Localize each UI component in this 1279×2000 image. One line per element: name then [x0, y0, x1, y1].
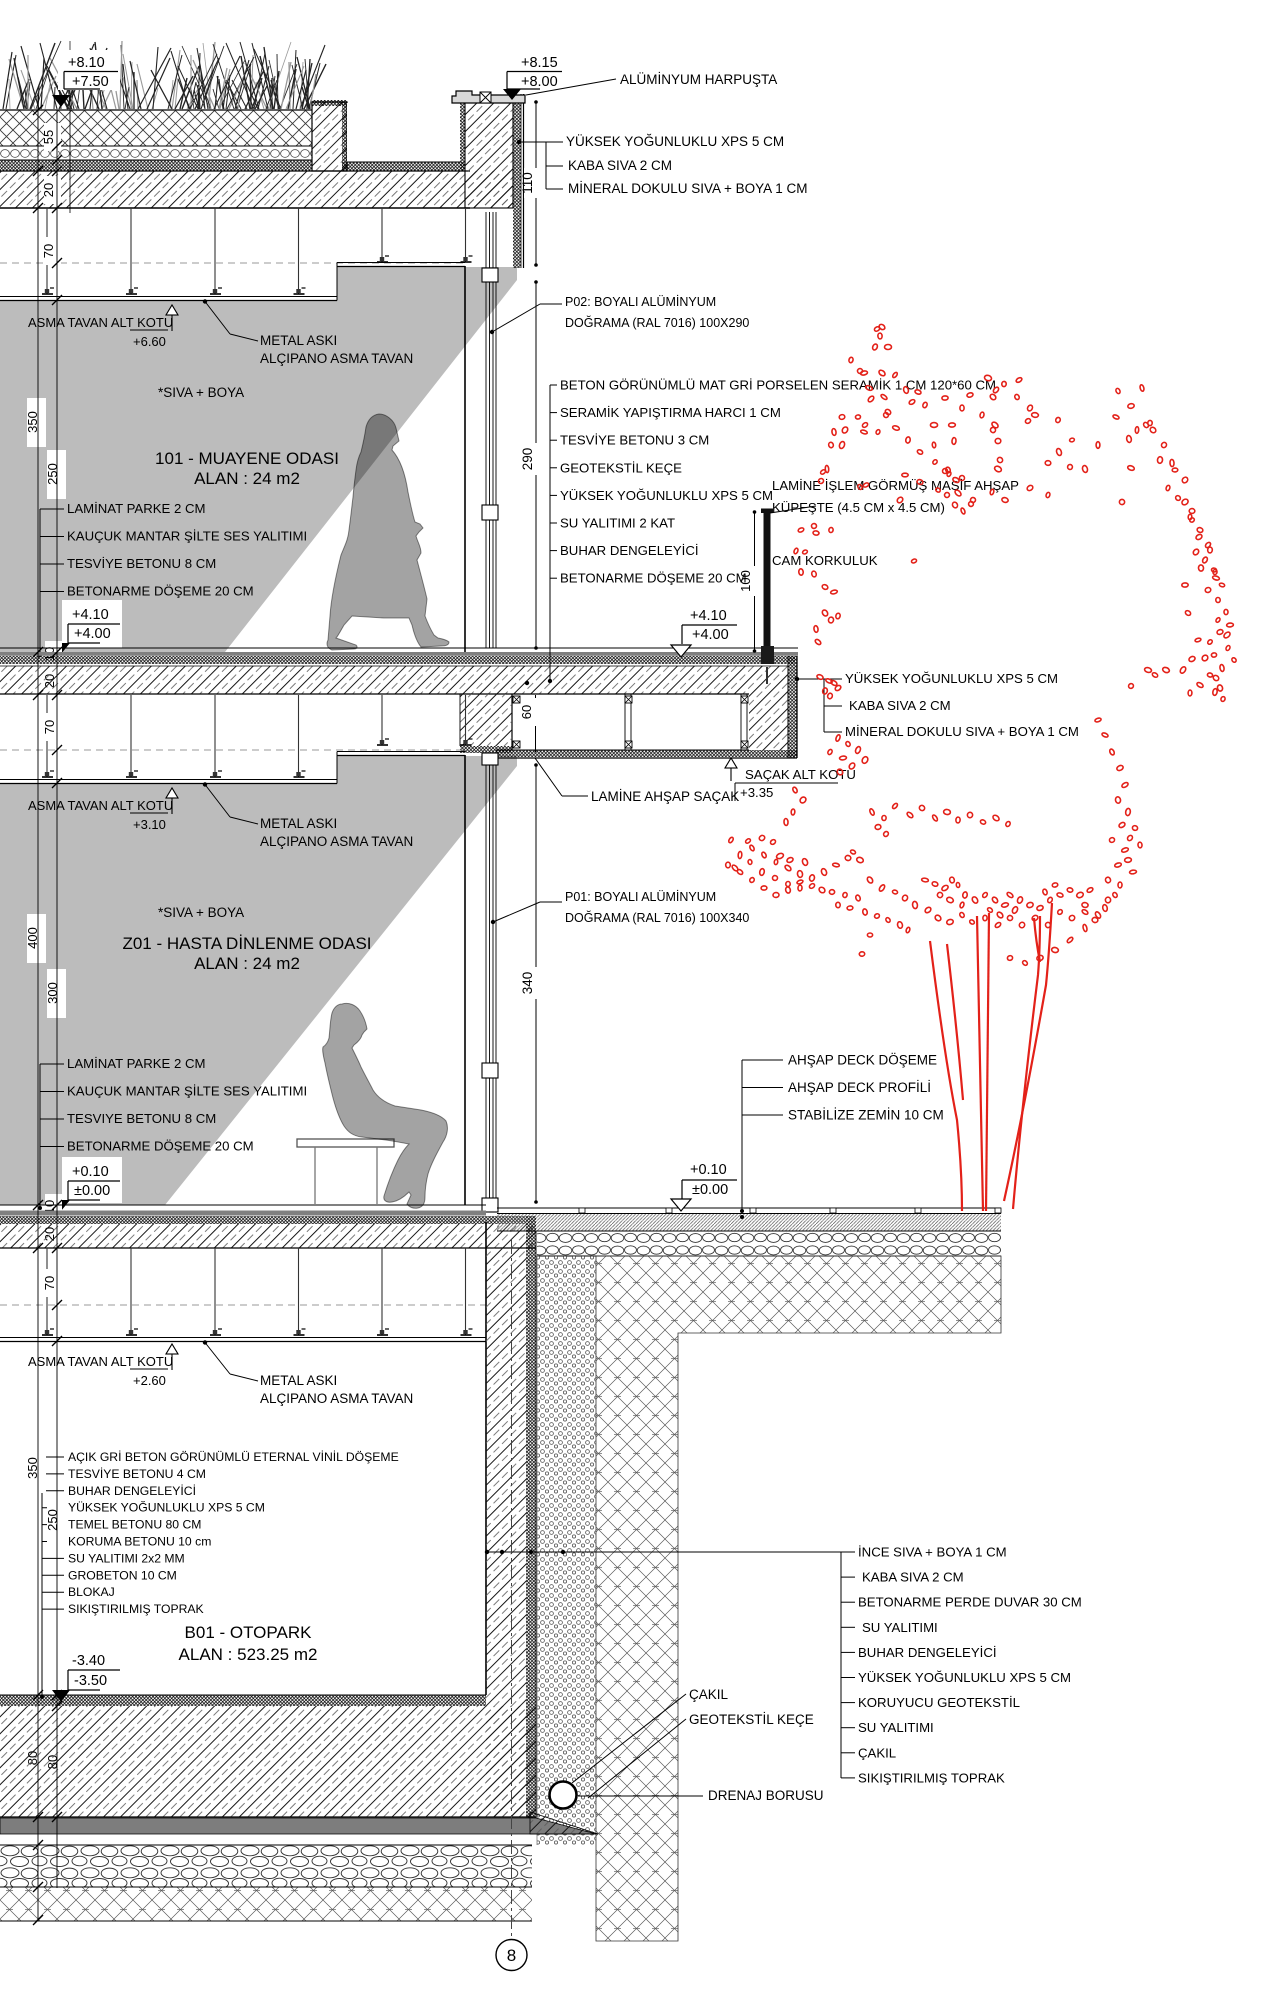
svg-text:+4.00: +4.00 — [74, 626, 111, 642]
svg-text:SU YALITIMI: SU YALITIMI — [862, 1620, 938, 1635]
svg-text:KORUMA BETONU 10 cm: KORUMA BETONU 10 cm — [68, 1535, 211, 1549]
svg-text:+8.00: +8.00 — [521, 74, 558, 90]
svg-text:ALÇIPANO ASMA TAVAN: ALÇIPANO ASMA TAVAN — [260, 1391, 413, 1406]
svg-text:DOĞRAMA (RAL 7016) 100X340: DOĞRAMA (RAL 7016) 100X340 — [565, 910, 749, 925]
svg-text:BUHAR DENGELEYİCİ: BUHAR DENGELEYİCİ — [68, 1484, 196, 1498]
svg-text:KABA SIVA 2 CM: KABA SIVA 2 CM — [849, 698, 951, 713]
svg-text:P02: BOYALI ALÜMİNYUM: P02: BOYALI ALÜMİNYUM — [565, 295, 716, 309]
svg-text:KABA SIVA 2 CM: KABA SIVA 2 CM — [862, 1570, 964, 1585]
svg-text:+4.00: +4.00 — [692, 627, 729, 643]
svg-text:GEOTEKSTİL KEÇE: GEOTEKSTİL KEÇE — [689, 1712, 814, 1727]
svg-text:±0.00: ±0.00 — [692, 1182, 728, 1198]
svg-text:60: 60 — [519, 705, 534, 719]
svg-text:Z01 - HASTA DİNLENME ODASI: Z01 - HASTA DİNLENME ODASI — [122, 934, 371, 953]
svg-text:ALÇIPANO ASMA TAVAN: ALÇIPANO ASMA TAVAN — [260, 834, 413, 849]
svg-text:SU YALITIMI 2x2 MM: SU YALITIMI 2x2 MM — [68, 1551, 185, 1565]
svg-text:METAL ASKI: METAL ASKI — [260, 1373, 337, 1388]
svg-text:+4.10: +4.10 — [72, 607, 109, 623]
svg-text:ALÇIPANO ASMA TAVAN: ALÇIPANO ASMA TAVAN — [260, 351, 413, 366]
svg-text:B01 - OTOPARK: B01 - OTOPARK — [185, 1623, 313, 1642]
svg-text:-3.50: -3.50 — [74, 1673, 107, 1689]
svg-text:ALAN : 24 m2: ALAN : 24 m2 — [194, 954, 300, 973]
svg-text:P01: BOYALI ALÜMİNYUM: P01: BOYALI ALÜMİNYUM — [565, 890, 716, 904]
svg-text:ÇAKIL: ÇAKIL — [858, 1745, 896, 1760]
svg-text:AHŞAP DECK PROFİLİ: AHŞAP DECK PROFİLİ — [788, 1080, 931, 1095]
svg-text:METAL ASKI: METAL ASKI — [260, 816, 337, 831]
svg-text:BLOKAJ: BLOKAJ — [68, 1585, 115, 1599]
svg-text:TESVIYE BETONU 8 CM: TESVIYE BETONU 8 CM — [67, 1111, 216, 1126]
svg-text:SIKIŞTIRILMIŞ TOPRAK: SIKIŞTIRILMIŞ TOPRAK — [858, 1770, 1005, 1785]
svg-text:LAMİNAT PARKE 2 CM: LAMİNAT PARKE 2 CM — [67, 501, 206, 516]
svg-text:KÜPEŞTE (4.5 CM x 4.5 CM): KÜPEŞTE (4.5 CM x 4.5 CM) — [772, 500, 945, 515]
svg-text:YÜKSEK YOĞUNLUKLU XPS 5 CM: YÜKSEK YOĞUNLUKLU XPS 5 CM — [566, 134, 784, 149]
svg-text:AÇIK GRİ BETON GÖRÜNÜMLÜ ETERN: AÇIK GRİ BETON GÖRÜNÜMLÜ ETERNAL VİNİL D… — [68, 1450, 399, 1464]
svg-text:GROBETON 10 CM: GROBETON 10 CM — [68, 1568, 177, 1582]
svg-text:LAMİNE İŞLEM GÖRMÜŞ MASİF AHŞA: LAMİNE İŞLEM GÖRMÜŞ MASİF AHŞAP — [772, 478, 1019, 493]
svg-text:TESVİYE BETONU 8 CM: TESVİYE BETONU 8 CM — [67, 556, 216, 571]
svg-text:SERAMİK YAPIŞTIRMA HARCI 1 CM: SERAMİK YAPIŞTIRMA HARCI 1 CM — [560, 405, 781, 420]
svg-text:BETONARME PERDE DUVAR 30 CM: BETONARME PERDE DUVAR 30 CM — [858, 1595, 1082, 1610]
svg-text:55: 55 — [41, 130, 56, 144]
svg-text:+7.50: +7.50 — [72, 74, 109, 90]
svg-text:ALAN : 24 m2: ALAN : 24 m2 — [194, 469, 300, 488]
svg-text:+2.60: +2.60 — [133, 1373, 166, 1388]
svg-text:250: 250 — [45, 1509, 60, 1531]
svg-text:ASMA TAVAN ALT KOTU: ASMA TAVAN ALT KOTU — [28, 1354, 173, 1369]
svg-text:300: 300 — [45, 982, 60, 1004]
svg-text:+0.10: +0.10 — [690, 1162, 727, 1178]
svg-text:METAL ASKI: METAL ASKI — [260, 333, 337, 348]
svg-text:ALÜMİNYUM HARPUŞTA: ALÜMİNYUM HARPUŞTA — [620, 72, 777, 87]
svg-text:DOĞRAMA (RAL 7016) 100X290: DOĞRAMA (RAL 7016) 100X290 — [565, 315, 749, 330]
svg-text:340: 340 — [520, 972, 535, 995]
svg-text:STABİLİZE ZEMİN 10 CM: STABİLİZE ZEMİN 10 CM — [788, 1108, 944, 1123]
svg-text:8: 8 — [507, 1946, 516, 1965]
svg-text:BUHAR DENGELEYİCİ: BUHAR DENGELEYİCİ — [560, 543, 699, 558]
svg-text:ALAN : 523.25 m2: ALAN : 523.25 m2 — [179, 1645, 318, 1664]
svg-text:KAUÇUK MANTAR ŞİLTE SES YALITI: KAUÇUK MANTAR ŞİLTE SES YALITIMI — [67, 529, 307, 544]
svg-text:YÜKSEK YOĞUNLUKLU XPS 5 CM: YÜKSEK YOĞUNLUKLU XPS 5 CM — [68, 1500, 265, 1515]
svg-text:MİNERAL DOKULU SIVA + BOYA 1 C: MİNERAL DOKULU SIVA + BOYA 1 CM — [568, 181, 807, 196]
svg-text:GEOTEKSTİL KEÇE: GEOTEKSTİL KEÇE — [560, 460, 682, 475]
svg-text:+6.60: +6.60 — [133, 334, 166, 349]
svg-text:KAUÇUK MANTAR ŞİLTE SES YALITI: KAUÇUK MANTAR ŞİLTE SES YALITIMI — [67, 1084, 307, 1099]
svg-text:BETONARME DÖŞEME 20 CM: BETONARME DÖŞEME 20 CM — [560, 571, 747, 586]
svg-text:70: 70 — [42, 720, 57, 734]
svg-text:LAMİNE AHŞAP SAÇAK: LAMİNE AHŞAP SAÇAK — [591, 789, 739, 804]
svg-text:CAM KORKULUK: CAM KORKULUK — [772, 553, 878, 568]
svg-text:70: 70 — [42, 1276, 57, 1290]
svg-text:*SIVA + BOYA: *SIVA + BOYA — [158, 905, 244, 920]
svg-text:20: 20 — [41, 183, 56, 197]
svg-text:YÜKSEK YOĞUNLUKLU XPS 5 CM: YÜKSEK YOĞUNLUKLU XPS 5 CM — [845, 671, 1058, 686]
svg-text:-3.40: -3.40 — [72, 1653, 105, 1669]
svg-text:YÜKSEK YOĞUNLUKLU XPS 5 CM: YÜKSEK YOĞUNLUKLU XPS 5 CM — [560, 488, 773, 503]
svg-text:+3.10: +3.10 — [133, 817, 166, 832]
svg-text:MİNERAL DOKULU SIVA + BOYA 1 C: MİNERAL DOKULU SIVA + BOYA 1 CM — [845, 724, 1079, 739]
svg-text:SU YALITIMI 2 KAT: SU YALITIMI 2 KAT — [560, 516, 675, 531]
svg-text:110: 110 — [520, 172, 535, 194]
svg-text:ASMA TAVAN ALT KOTU: ASMA TAVAN ALT KOTU — [28, 798, 173, 813]
svg-text:ASMA TAVAN ALT KOTU: ASMA TAVAN ALT KOTU — [28, 315, 173, 330]
svg-text:DRENAJ BORUSU: DRENAJ BORUSU — [708, 1788, 824, 1803]
svg-text:+4.10: +4.10 — [690, 608, 727, 624]
svg-text:+3.35: +3.35 — [740, 785, 773, 800]
svg-text:BETONARME DÖŞEME 20 CM: BETONARME DÖŞEME 20 CM — [67, 1139, 254, 1154]
svg-text:TEMEL BETONU 80 CM: TEMEL BETONU 80 CM — [68, 1518, 201, 1532]
svg-text:İNCE SIVA + BOYA 1 CM: İNCE SIVA + BOYA 1 CM — [858, 1545, 1007, 1560]
svg-text:AHŞAP DECK DÖŞEME: AHŞAP DECK DÖŞEME — [788, 1053, 937, 1068]
svg-text:YÜKSEK YOĞUNLUKLU XPS 5 CM: YÜKSEK YOĞUNLUKLU XPS 5 CM — [858, 1670, 1071, 1685]
svg-text:TESVİYE BETONU 4 CM: TESVİYE BETONU 4 CM — [68, 1467, 206, 1481]
svg-text:+8.10: +8.10 — [68, 55, 105, 71]
svg-text:*SIVA + BOYA: *SIVA + BOYA — [158, 385, 244, 400]
svg-text:LAMİNAT PARKE 2 CM: LAMİNAT PARKE 2 CM — [67, 1056, 206, 1071]
svg-text:BETON GÖRÜNÜMLÜ MAT GRİ PORSEL: BETON GÖRÜNÜMLÜ MAT GRİ PORSELEN SERAMİK… — [560, 378, 996, 393]
svg-text:ÇAKIL: ÇAKIL — [689, 1687, 729, 1702]
svg-text:BUHAR DENGELEYİCİ: BUHAR DENGELEYİCİ — [858, 1645, 997, 1660]
svg-text:TESVİYE BETONU 3 CM: TESVİYE BETONU 3 CM — [560, 433, 709, 448]
svg-text:+8.15: +8.15 — [521, 55, 558, 71]
svg-text:+0.10: +0.10 — [72, 1164, 109, 1180]
svg-text:70: 70 — [41, 244, 56, 258]
svg-text:KABA SIVA 2 CM: KABA SIVA 2 CM — [568, 158, 672, 173]
svg-text:BETONARME DÖŞEME 20 CM: BETONARME DÖŞEME 20 CM — [67, 584, 254, 599]
svg-text:250: 250 — [45, 463, 60, 485]
svg-text:SIKIŞTIRILMIŞ TOPRAK: SIKIŞTIRILMIŞ TOPRAK — [68, 1602, 204, 1616]
svg-text:290: 290 — [520, 448, 535, 471]
svg-text:KORUYUCU GEOTEKSTİL: KORUYUCU GEOTEKSTİL — [858, 1695, 1020, 1710]
svg-text:±0.00: ±0.00 — [74, 1183, 110, 1199]
svg-text:101 - MUAYENE ODASI: 101 - MUAYENE ODASI — [155, 449, 339, 468]
svg-text:SU YALITIMI: SU YALITIMI — [858, 1720, 934, 1735]
